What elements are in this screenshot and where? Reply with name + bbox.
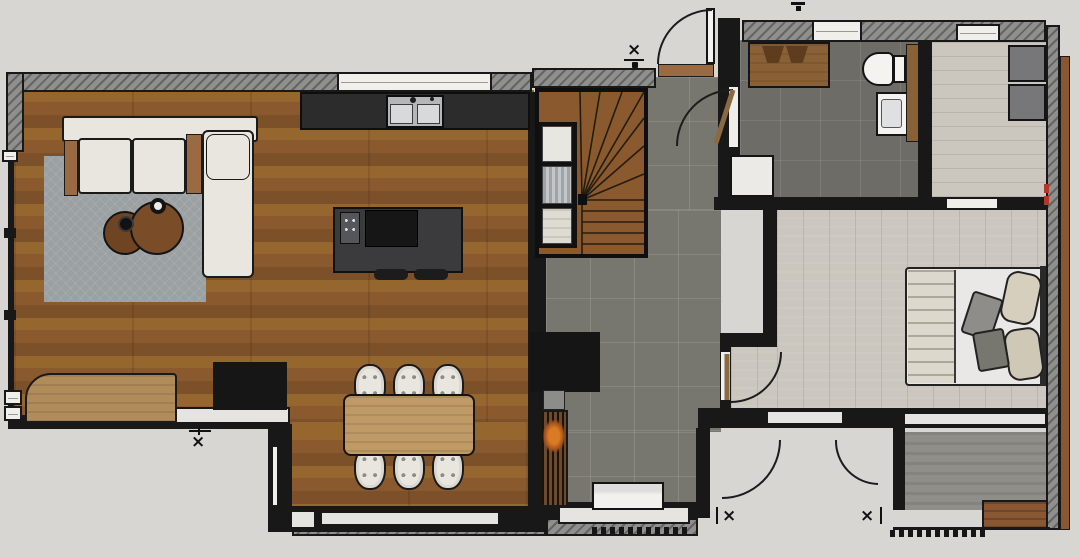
island-appliance [340, 212, 360, 244]
island-stool-1 [374, 269, 408, 280]
bathroom-vanity [906, 44, 919, 142]
bedroom-west-stub [720, 333, 777, 347]
sofa-arm-left [64, 140, 78, 196]
east-wall-wood-cladding [1060, 56, 1070, 530]
sink-faucet [410, 97, 416, 103]
sink-soap [430, 97, 434, 101]
pillow-beige-2 [1003, 326, 1046, 383]
bedroom-door-gap [721, 352, 730, 400]
back-door-swing-arc-right [836, 440, 878, 484]
back-door-threshold [767, 411, 843, 424]
closet-panel-glass [542, 166, 572, 204]
hall-sill-dashes [592, 527, 688, 534]
marker-tick [880, 507, 882, 524]
closet-panel-bottom [542, 208, 572, 244]
dressing-door-gap [947, 199, 997, 208]
exit-marker-back-door-right: × [860, 506, 886, 528]
washbasin-bowl [881, 99, 902, 128]
cushion-gray-2 [972, 328, 1010, 373]
marker-dot [796, 6, 801, 11]
east-wall [1046, 25, 1060, 530]
radiator [592, 482, 664, 510]
entry-east-wall-upper [718, 18, 740, 62]
island-stool-2 [414, 269, 448, 280]
front-door-threshold [658, 64, 714, 77]
hall-bay-east-wall [696, 428, 710, 518]
sofa-seat-cushion-1 [78, 138, 132, 194]
west-wall-upper [6, 72, 24, 152]
bedroom-west-wall [763, 210, 777, 333]
marker-tick [716, 507, 718, 524]
toilet-bowl [862, 52, 894, 86]
bed-blanket [908, 270, 956, 383]
wardrobe-2 [1008, 84, 1046, 121]
wardrobe-1 [1008, 45, 1046, 82]
marker-dot [632, 62, 638, 68]
west-corner-window-2 [4, 406, 22, 421]
back-door-swing-arc-left [722, 440, 780, 498]
wood-deck [982, 500, 1050, 530]
bathroom-window [812, 20, 862, 42]
exit-marker-front-door: × [624, 42, 648, 70]
bathroom-door-gap [729, 87, 738, 147]
island-cooktop [365, 210, 418, 247]
sink-bowl-right [417, 104, 440, 124]
sofa-seat-cushion-2 [132, 138, 186, 194]
media-cabinet [213, 362, 287, 410]
sofa-divider [186, 134, 202, 194]
sink-bowl-left [390, 104, 413, 124]
west-corner-window-1 [4, 390, 22, 405]
east-wall-red-tick-1 [1044, 184, 1049, 193]
west-wall-lower [8, 152, 14, 418]
sofa-chaise-cushion [206, 134, 250, 180]
dressing-window [956, 24, 1000, 42]
front-door-swing-arc [658, 10, 712, 64]
stove-hearth [543, 390, 565, 410]
north-wall-right-wing [742, 20, 1046, 42]
marker-line [624, 59, 644, 61]
west-wall-tick-2 [4, 310, 16, 320]
exit-marker-living-window: × [189, 426, 213, 452]
dining-table [343, 394, 475, 456]
marker-line [791, 2, 805, 5]
bedroom-north-wall [714, 197, 1047, 210]
window-bench [25, 373, 177, 423]
terrace-west-wall [893, 428, 905, 510]
dining-west-window [271, 445, 279, 507]
terrace-dashes [890, 530, 985, 537]
closet-panel-top [542, 126, 572, 162]
floor-plan: × × × × [0, 0, 1080, 558]
survey-marker-top-right [791, 0, 807, 12]
kitchen-window [337, 72, 492, 92]
terrace-floor [893, 432, 1050, 510]
front-door-leaf [706, 8, 715, 64]
west-wall-tick-1 [4, 228, 16, 238]
coffee-table-candle [150, 198, 166, 214]
exit-marker-back-door-left: × [716, 506, 742, 528]
bedroom-window-sill [903, 412, 1047, 426]
fire-glow [543, 420, 565, 452]
dining-window-sill [320, 511, 500, 526]
north-wall-entry [532, 68, 656, 88]
bathroom-dressing-divider [918, 40, 932, 198]
dining-corner-block [290, 510, 316, 529]
wood-stove [530, 332, 600, 392]
east-wall-red-tick-2 [1044, 196, 1049, 205]
coffee-table-bowl [118, 216, 134, 232]
west-window [2, 150, 18, 162]
toilet-tank [893, 55, 906, 83]
shower-tray [730, 155, 774, 197]
